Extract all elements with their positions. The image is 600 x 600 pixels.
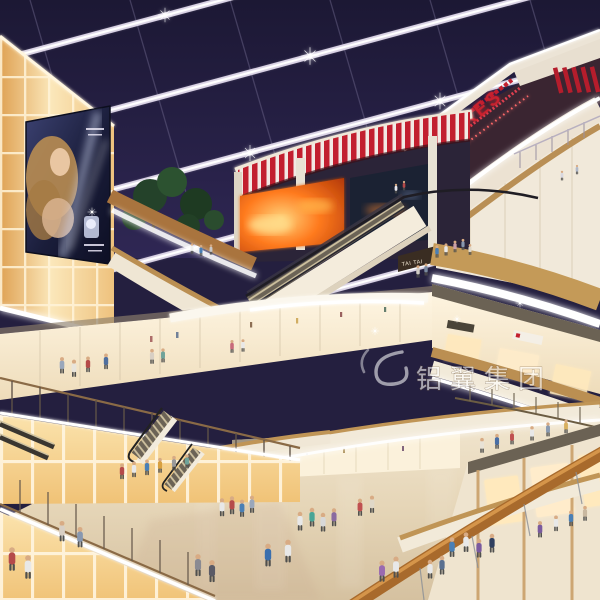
mall-atrium-rendering: THEATRES (0, 0, 600, 600)
atrium-scene: THEATRES (0, 0, 600, 600)
perfume-billboard (26, 106, 110, 264)
watermark-logo-swirl (376, 352, 407, 384)
watermark-text: 铝翼集团 (416, 365, 552, 395)
model-face (50, 148, 70, 176)
